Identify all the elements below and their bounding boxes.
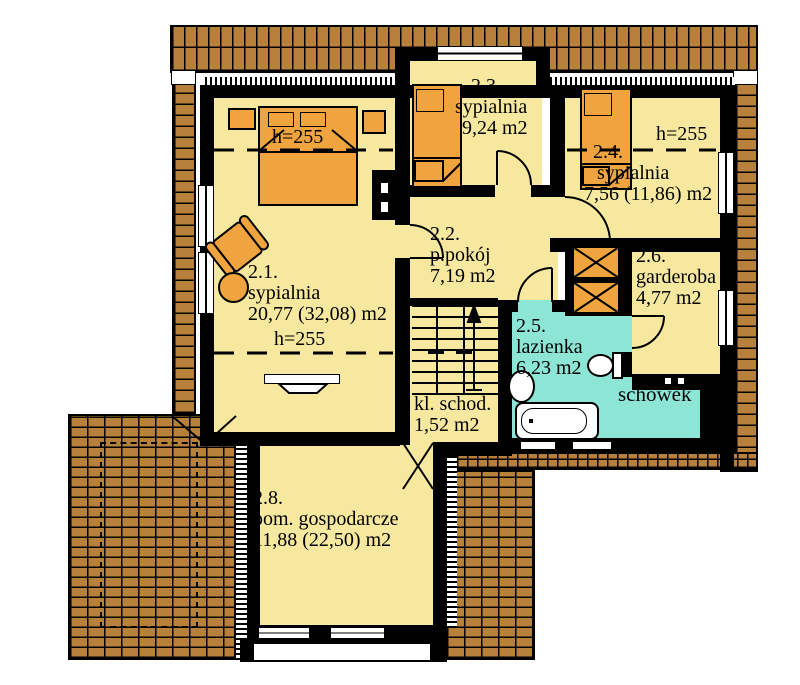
floor-plan: 2.1. sypialnia 20,77 (32,08) m2 2.2. p.p… — [0, 0, 800, 685]
room-label-2-4: 2.4. sypialnia 7,56 (11,86) m2 — [584, 142, 712, 205]
pillow — [268, 112, 294, 127]
room-id: 2.3. — [455, 76, 528, 97]
window — [718, 152, 734, 214]
room-id: 2.4. — [584, 142, 712, 163]
room-id: 2.6. — [636, 246, 716, 267]
vent-shaft — [573, 247, 619, 278]
window — [198, 252, 214, 314]
roof-window — [572, 441, 612, 450]
room-name: sypialnia — [455, 97, 528, 118]
room-area: 11,88 (22,50) m2 — [253, 530, 399, 551]
wall — [395, 258, 410, 445]
room-id: 2.8. — [253, 488, 399, 509]
room-id: 2.5. — [516, 316, 583, 337]
bathtub-drain — [529, 419, 533, 423]
room-name: garderoba — [636, 267, 716, 288]
pillow — [416, 89, 444, 112]
room-area: 4,77 m2 — [636, 288, 716, 309]
room-label-2-3: 2.3. sypialnia 9,24 m2 — [455, 76, 528, 139]
nightstand — [362, 110, 386, 134]
window — [258, 627, 310, 639]
roof-bottom-right-vertical — [445, 470, 535, 660]
shelf — [264, 374, 340, 384]
room-id: 2.2. — [430, 224, 496, 245]
window — [718, 290, 734, 346]
wall — [395, 48, 410, 98]
room-area: 9,24 m2 — [455, 118, 528, 139]
room-name: sypialnia — [248, 283, 387, 304]
room-area: 6,23 m2 — [516, 358, 583, 379]
stairs-label: kl. schod. 1,52 m2 — [414, 394, 491, 436]
room-label-2-8: 2.8. pom. gospodarcze 11,88 (22,50) m2 — [253, 488, 399, 551]
wall — [550, 85, 565, 197]
height-label: h=255 — [656, 124, 707, 145]
round-table — [218, 272, 249, 303]
nightstand — [228, 108, 256, 130]
room-label-2-6: 2.6. garderoba 4,77 m2 — [636, 246, 716, 309]
stairs-treads — [412, 305, 500, 395]
window — [330, 627, 385, 639]
wall — [536, 48, 550, 98]
room-area: 20,77 (32,08) m2 — [248, 304, 387, 325]
roof-left-strip — [172, 73, 196, 415]
height-label: h=255 — [274, 329, 325, 350]
wall — [498, 300, 518, 312]
chimney-vent — [380, 201, 389, 213]
wall — [437, 442, 512, 456]
pillow — [584, 93, 612, 116]
room-name: lazienka — [516, 337, 583, 358]
room-area: 7,19 m2 — [430, 266, 496, 287]
pillow — [300, 112, 326, 127]
eaves-dotted-strip-room28 — [447, 456, 457, 628]
roof-gutter-cap-right — [733, 70, 758, 85]
schowek-label: schowek — [618, 384, 691, 405]
toilet-bowl — [587, 354, 614, 377]
terrace-post — [430, 638, 447, 662]
wall — [410, 298, 498, 306]
stairs-area: 1,52 m2 — [414, 415, 491, 436]
eaves-dotted-strip-garage — [236, 416, 247, 660]
roof-gutter-cap-left — [171, 70, 196, 85]
roof-garage-dashed-outline — [100, 442, 198, 628]
room-area: 7,56 (11,86) m2 — [584, 184, 712, 205]
wall — [720, 85, 734, 472]
stairs-name: kl. schod. — [414, 394, 491, 415]
room-name: sypialnia — [584, 163, 712, 184]
terrace-post — [240, 638, 254, 662]
vent-shaft — [573, 282, 619, 313]
room-id: 2.1. — [248, 262, 387, 283]
wall — [531, 185, 550, 197]
window — [437, 46, 523, 61]
wall — [200, 432, 400, 446]
room-label-2-5: 2.5. lazienka 6,23 m2 — [516, 316, 583, 379]
height-label: h=255 — [272, 127, 323, 148]
chimney-vent — [380, 182, 389, 194]
room-label-2-1: 2.1. sypialnia 20,77 (32,08) m2 — [248, 262, 387, 325]
room-label-2-2: 2.2. p.pokój 7,19 m2 — [430, 224, 496, 287]
stairs-winder-landing — [402, 442, 434, 490]
roof-right-strip — [734, 73, 758, 472]
room-name: pom. gospodarcze — [253, 509, 399, 530]
terrace — [240, 642, 447, 662]
room-name: p.pokój — [430, 245, 496, 266]
wall — [433, 442, 447, 628]
roof-window — [520, 441, 556, 450]
